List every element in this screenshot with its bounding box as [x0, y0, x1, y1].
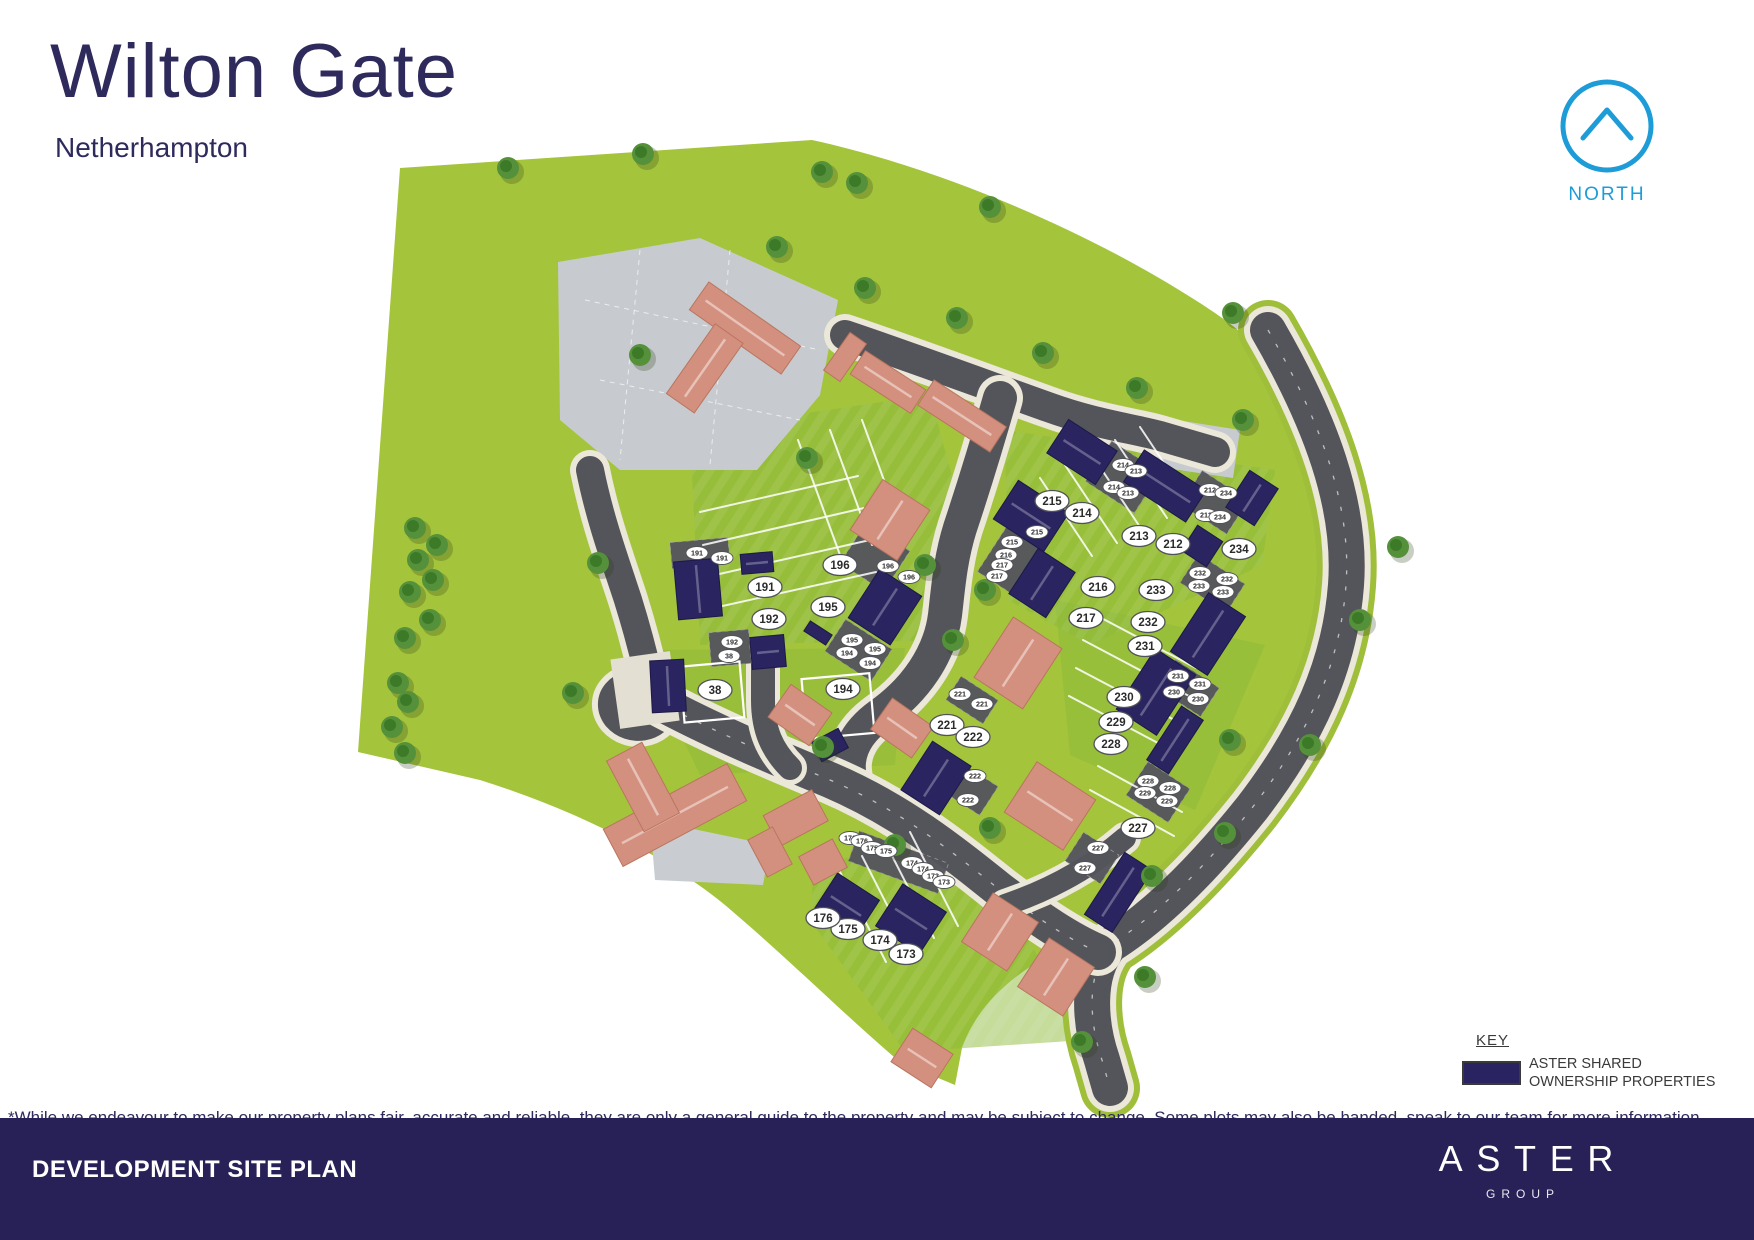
svg-text:230: 230 — [1168, 688, 1180, 697]
parking-bay-label: 38 — [718, 650, 740, 663]
svg-text:214: 214 — [1072, 508, 1092, 520]
svg-text:192: 192 — [759, 614, 778, 626]
parking-bay-label: 213 — [1125, 465, 1147, 478]
parking-bay-label: 194 — [859, 657, 881, 670]
svg-text:176: 176 — [813, 913, 832, 925]
parking-bay-label: 232 — [1189, 567, 1211, 580]
svg-text:221: 221 — [954, 690, 966, 699]
svg-text:227: 227 — [1079, 864, 1091, 873]
parking-bay-label: 196 — [898, 571, 920, 584]
parking-bay-label: 228 — [1137, 775, 1159, 788]
svg-text:191: 191 — [755, 582, 775, 594]
parking-bay-label: 233 — [1188, 580, 1210, 593]
svg-text:229: 229 — [1106, 717, 1125, 729]
plot-label: 212 — [1156, 534, 1190, 555]
parking-bay-label: 230 — [1163, 686, 1185, 699]
svg-text:212: 212 — [1204, 486, 1216, 495]
tree-icon — [1387, 536, 1414, 563]
parking-bay-label: 232 — [1216, 573, 1238, 586]
parking-bay-label: 229 — [1134, 787, 1156, 800]
parking-bay-label: 234 — [1209, 511, 1231, 524]
plot-label: 233 — [1139, 580, 1173, 601]
svg-text:191: 191 — [691, 549, 703, 558]
parking-bay-label: 173 — [933, 876, 955, 889]
svg-text:234: 234 — [1220, 489, 1232, 498]
parking-bay-label: 191 — [711, 552, 733, 565]
plot-label: 229 — [1099, 712, 1133, 733]
parking-bay-label: 228 — [1159, 782, 1181, 795]
parking-bay-label: 234 — [1215, 487, 1237, 500]
map-key: KEY ASTER SHARED OWNERSHIP PROPERTIES — [1462, 1032, 1715, 1091]
plot-label: 176 — [806, 908, 840, 929]
svg-text:233: 233 — [1217, 588, 1229, 597]
svg-text:212: 212 — [1163, 539, 1182, 551]
parking-bay-label: 192 — [721, 636, 743, 649]
parking-bay-label: 217 — [986, 570, 1008, 583]
svg-text:38: 38 — [725, 652, 733, 661]
plot-label: 230 — [1107, 687, 1141, 708]
parking-bay-label: 222 — [957, 794, 979, 807]
svg-text:213: 213 — [1122, 489, 1134, 498]
tree-icon — [1134, 966, 1161, 993]
parking-bay-label: 215 — [1026, 526, 1048, 539]
parking-bay-label: 215 — [1001, 536, 1023, 549]
plot-label: 195 — [811, 597, 845, 618]
svg-text:173: 173 — [938, 878, 950, 887]
svg-text:191: 191 — [716, 554, 728, 563]
svg-text:194: 194 — [841, 649, 853, 658]
svg-text:194: 194 — [833, 684, 853, 696]
svg-text:196: 196 — [882, 562, 894, 571]
svg-text:195: 195 — [818, 602, 838, 614]
svg-text:222: 222 — [962, 796, 974, 805]
svg-text:233: 233 — [1146, 585, 1165, 597]
plot-label: 192 — [752, 609, 786, 630]
parking-bay-label: 222 — [964, 770, 986, 783]
parking-bay-label: 233 — [1212, 586, 1234, 599]
svg-text:173: 173 — [896, 949, 915, 961]
parking-bay-label: 231 — [1189, 678, 1211, 691]
svg-text:221: 221 — [937, 720, 957, 732]
svg-text:194: 194 — [864, 659, 876, 668]
svg-text:231: 231 — [1194, 680, 1206, 689]
parking-bay-label: 191 — [686, 547, 708, 560]
parking-bay-label: 195 — [864, 643, 886, 656]
svg-text:232: 232 — [1194, 569, 1206, 578]
svg-text:228: 228 — [1142, 777, 1154, 786]
plot-label: 38 — [698, 680, 732, 701]
svg-text:222: 222 — [963, 732, 982, 744]
svg-text:195: 195 — [846, 636, 858, 645]
svg-text:234: 234 — [1229, 544, 1249, 556]
parking-bay-label: 213 — [1117, 487, 1139, 500]
parking-bay-label: 221 — [971, 698, 993, 711]
parking-bay-label: 231 — [1167, 670, 1189, 683]
svg-text:175: 175 — [880, 847, 892, 856]
svg-text:175: 175 — [838, 924, 858, 936]
svg-text:222: 222 — [969, 772, 981, 781]
header: Wilton Gate Netherhampton — [50, 30, 458, 164]
svg-text:216: 216 — [1088, 582, 1107, 594]
brand-subtitle: GROUP — [1425, 1187, 1615, 1201]
north-indicator: NORTH — [1552, 76, 1662, 206]
plot-label: 194 — [826, 679, 860, 700]
parking-bay-label: 175 — [875, 845, 897, 858]
plot-label: 214 — [1065, 503, 1099, 524]
plot-label: 213 — [1122, 526, 1156, 547]
svg-text:230: 230 — [1114, 692, 1133, 704]
svg-text:174: 174 — [870, 935, 890, 947]
svg-text:217: 217 — [1076, 613, 1095, 625]
svg-text:38: 38 — [709, 685, 722, 697]
plot-label: 215 — [1035, 491, 1069, 512]
key-title: KEY — [1476, 1032, 1715, 1049]
north-arrow-icon — [1557, 76, 1657, 176]
svg-text:217: 217 — [991, 572, 1003, 581]
svg-text:213: 213 — [1130, 467, 1142, 476]
svg-text:232: 232 — [1138, 617, 1157, 629]
plot-label: 222 — [956, 727, 990, 748]
svg-text:231: 231 — [1172, 672, 1184, 681]
parking-bay-label: 227 — [1087, 842, 1109, 855]
svg-text:230: 230 — [1192, 695, 1204, 704]
plot-label: 216 — [1081, 577, 1115, 598]
svg-text:213: 213 — [1129, 531, 1148, 543]
plot-label: 231 — [1128, 636, 1162, 657]
svg-text:217: 217 — [996, 561, 1008, 570]
svg-text:196: 196 — [903, 573, 915, 582]
svg-text:228: 228 — [1164, 784, 1176, 793]
parking-bay-label: 196 — [877, 560, 899, 573]
page-subtitle: Netherhampton — [55, 132, 458, 164]
plot-label: 234 — [1222, 539, 1256, 560]
parking-bay-label: 195 — [841, 634, 863, 647]
svg-text:215: 215 — [1031, 528, 1043, 537]
svg-text:229: 229 — [1161, 797, 1173, 806]
parking-bay-label: 194 — [836, 647, 858, 660]
key-label: ASTER SHARED OWNERSHIP PROPERTIES — [1529, 1055, 1715, 1091]
svg-text:229: 229 — [1139, 789, 1151, 798]
shared-ownership-swatch — [1462, 1061, 1521, 1085]
svg-text:228: 228 — [1101, 739, 1121, 751]
svg-text:231: 231 — [1135, 641, 1155, 653]
parking-bay-label: 230 — [1187, 693, 1209, 706]
aster-group-logo: ASTER GROUP — [1425, 1138, 1615, 1201]
svg-text:196: 196 — [830, 560, 849, 572]
plot-label: 228 — [1094, 734, 1128, 755]
plot-label: 191 — [748, 577, 782, 598]
plot-label: 227 — [1121, 818, 1155, 839]
plot-label: 232 — [1131, 612, 1165, 633]
page-title: Wilton Gate — [50, 30, 458, 114]
parking-bay-label: 221 — [949, 688, 971, 701]
svg-text:227: 227 — [1128, 823, 1147, 835]
svg-text:232: 232 — [1221, 575, 1233, 584]
svg-text:233: 233 — [1193, 582, 1205, 591]
parking-bay-label: 227 — [1074, 862, 1096, 875]
svg-text:221: 221 — [976, 700, 988, 709]
footer-title: DEVELOPMENT SITE PLAN — [32, 1156, 357, 1184]
plot-label: 174 — [863, 930, 897, 951]
parking-bay-label: 229 — [1156, 795, 1178, 808]
svg-text:234: 234 — [1214, 513, 1226, 522]
brand-name: ASTER — [1425, 1138, 1615, 1180]
north-label: NORTH — [1552, 184, 1662, 206]
svg-text:215: 215 — [1042, 496, 1062, 508]
svg-text:215: 215 — [1006, 538, 1018, 547]
svg-text:227: 227 — [1092, 844, 1104, 853]
plot-label: 217 — [1069, 608, 1103, 629]
plot-label: 196 — [823, 555, 857, 576]
svg-text:192: 192 — [726, 638, 738, 647]
svg-text:195: 195 — [869, 645, 881, 654]
site-plan-poster: 1911911923819619619519419519421521521621… — [0, 0, 1754, 1240]
